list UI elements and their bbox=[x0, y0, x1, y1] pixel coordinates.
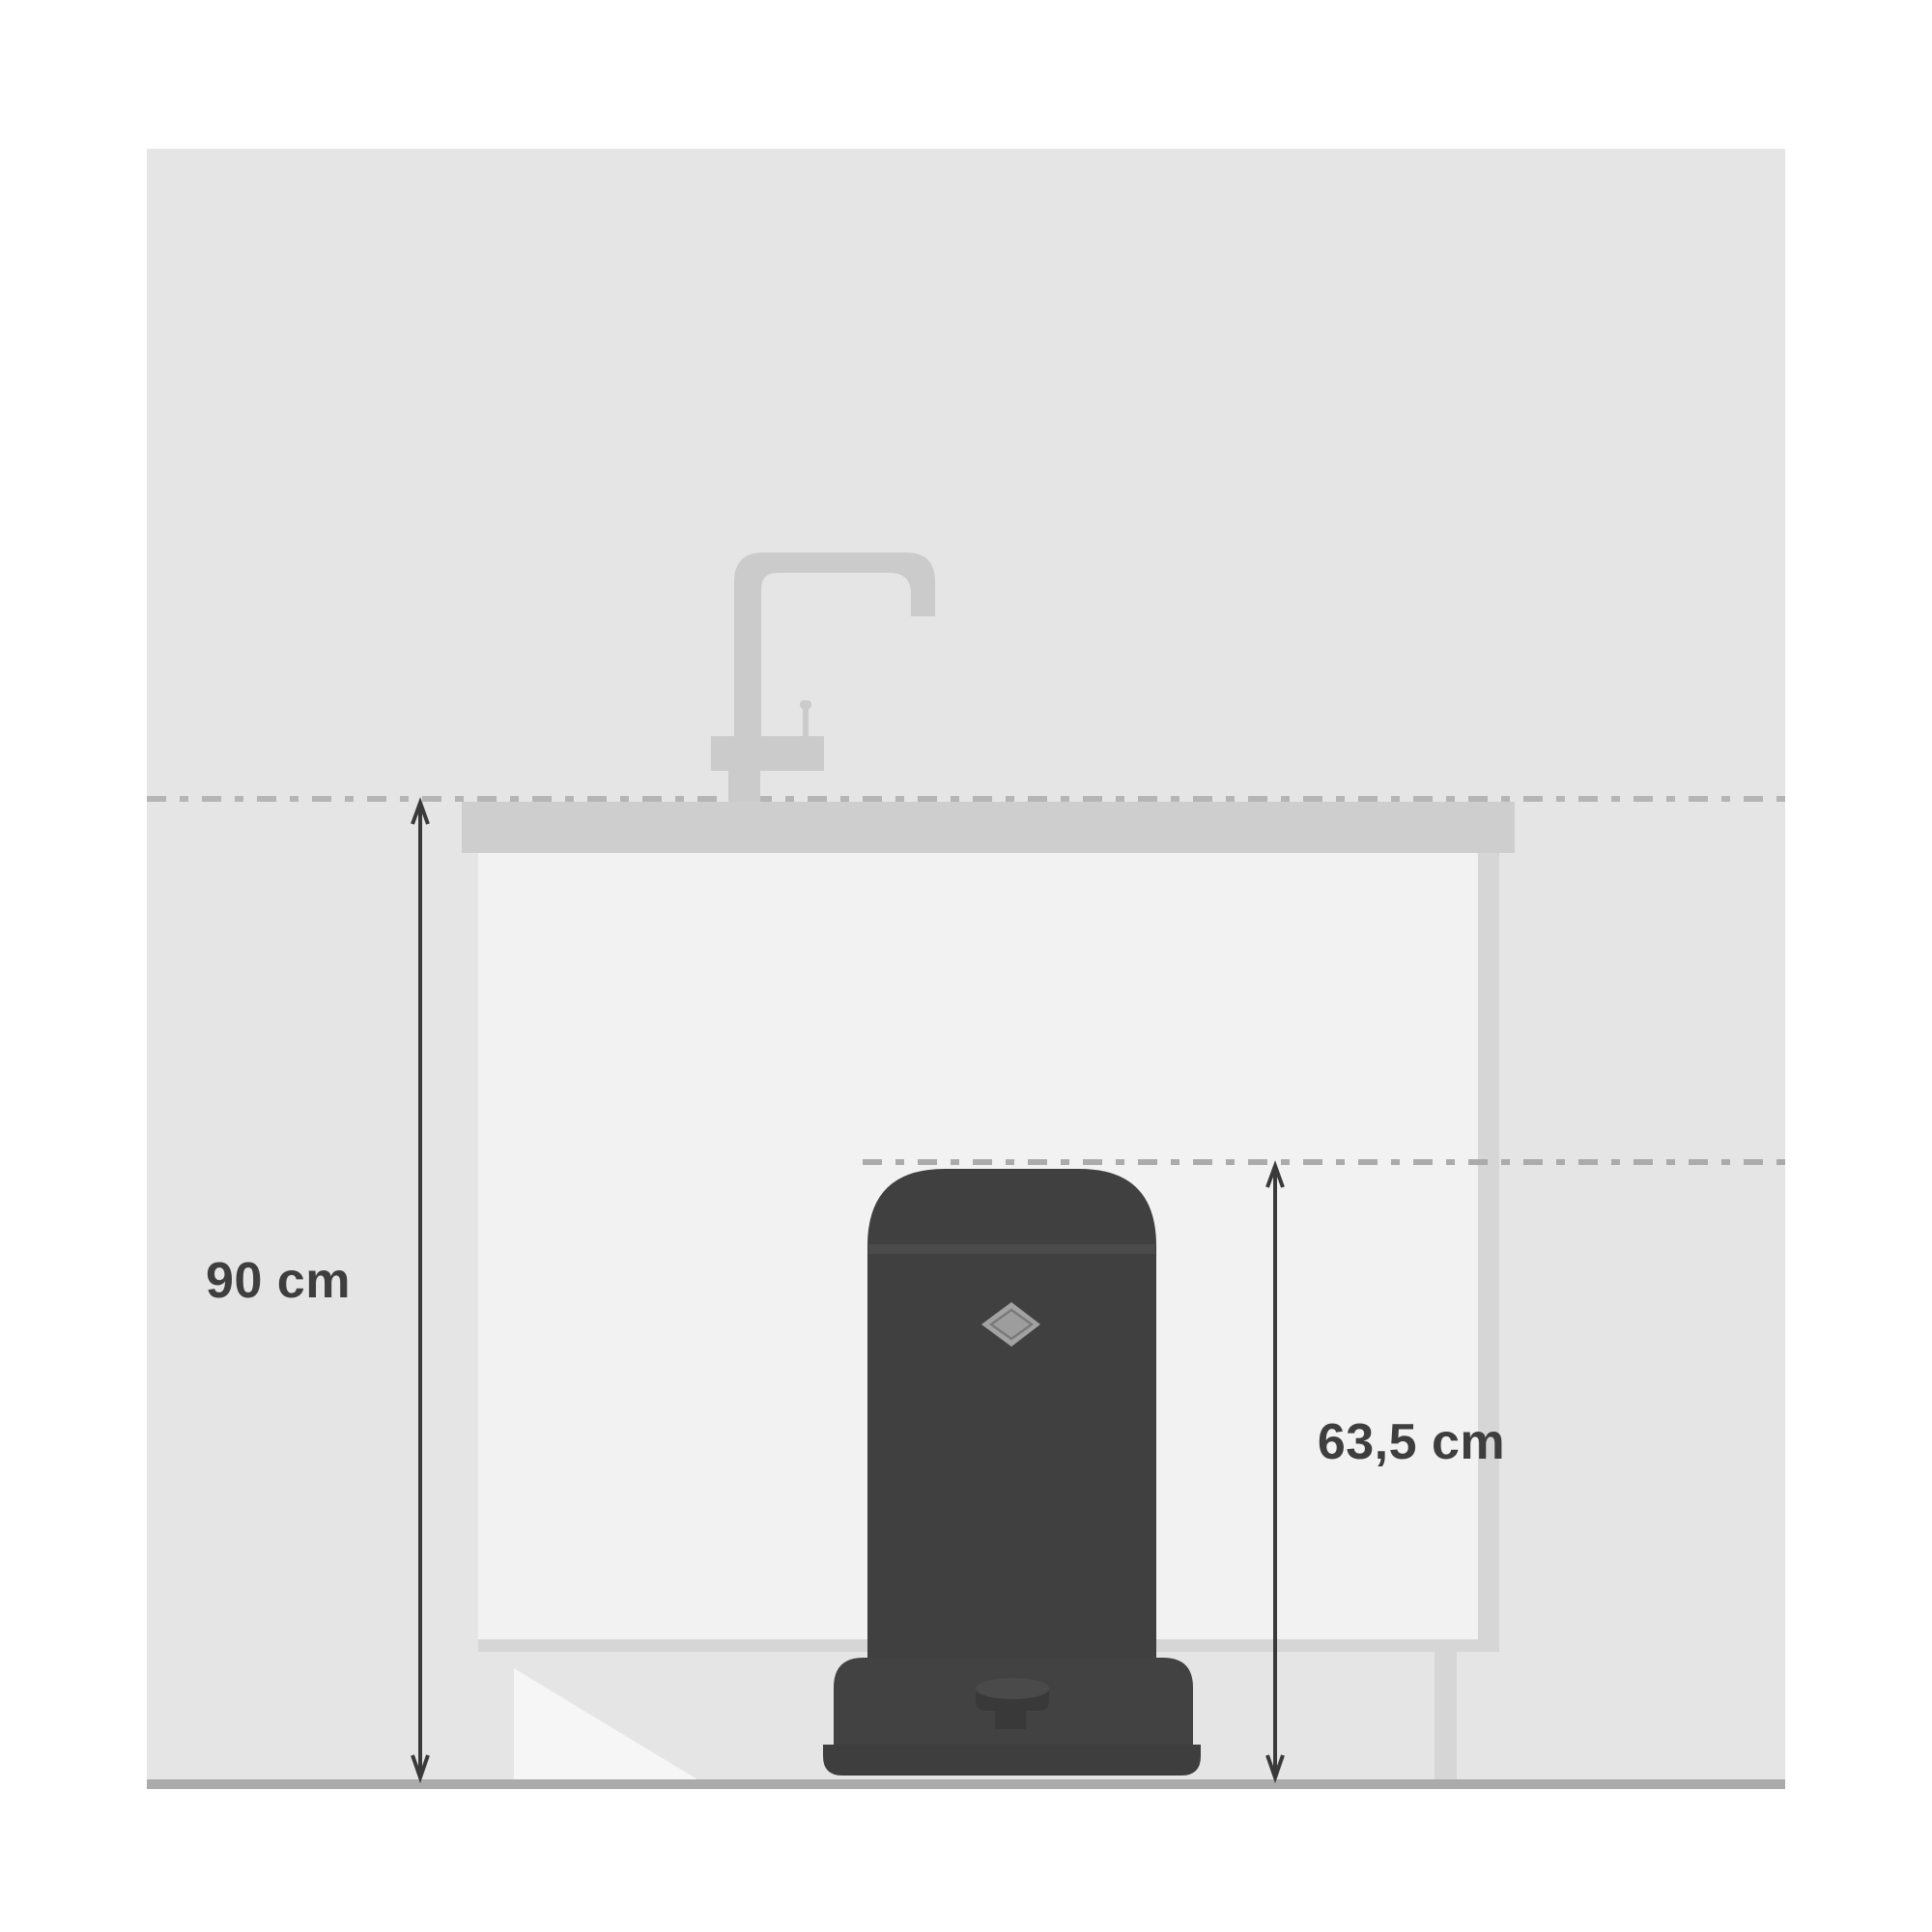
bin-height-label: 63,5 cm bbox=[1318, 1417, 1505, 1467]
counter-height-label: 90 cm bbox=[206, 1256, 351, 1306]
faucet-lever-knob bbox=[800, 700, 811, 709]
bin-lid-seam bbox=[868, 1244, 1155, 1254]
bin-pedal-cap-top bbox=[976, 1678, 1049, 1699]
pedal-bin-icon bbox=[823, 1169, 1201, 1776]
countertop bbox=[462, 802, 1515, 853]
cabinet-right-leg bbox=[1435, 1652, 1457, 1779]
bin-body bbox=[867, 1169, 1156, 1658]
faucet-stem bbox=[728, 770, 760, 805]
faucet-base bbox=[711, 736, 824, 771]
bin-foot bbox=[823, 1745, 1201, 1776]
cabinet-right-side bbox=[1478, 853, 1499, 1652]
scene-illustration bbox=[0, 0, 1932, 1932]
floor-line bbox=[147, 1779, 1785, 1789]
kitchen-measurement-diagram: 90 cm 63,5 cm bbox=[0, 0, 1932, 1932]
